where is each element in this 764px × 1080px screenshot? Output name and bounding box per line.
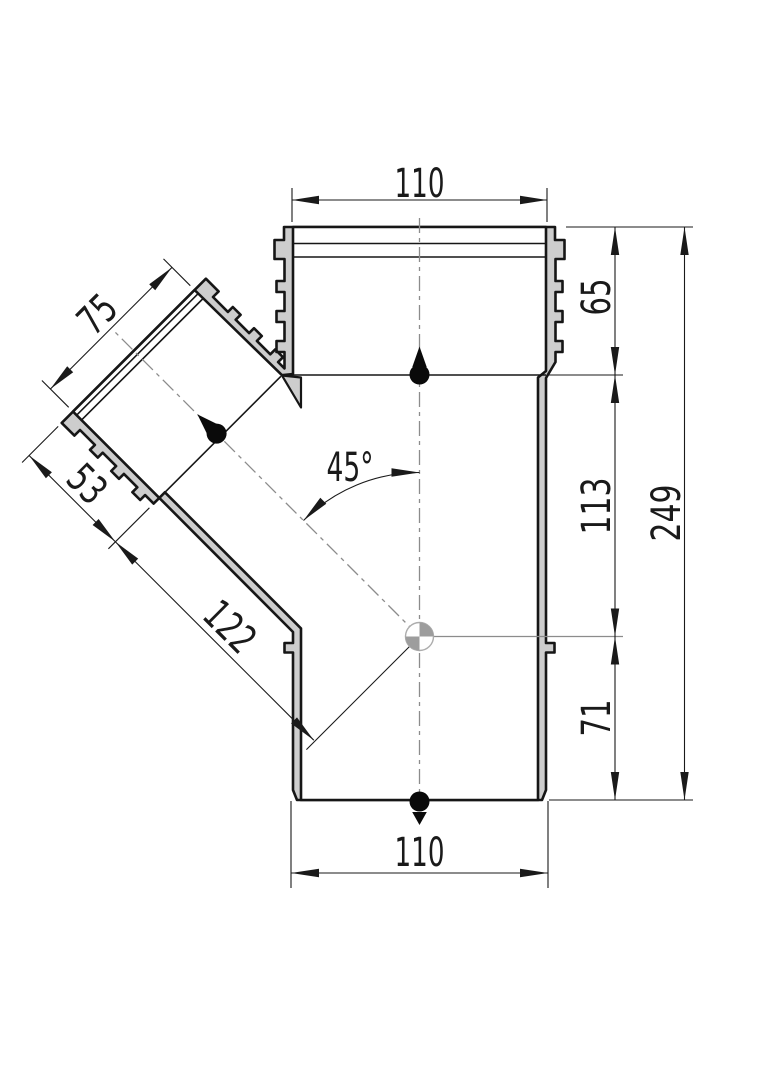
dim-label-bottom-width: 110 [395,830,445,876]
dim-label-branch-angle: 45° [327,445,374,491]
dim-label-branch-center-length: 122 [194,592,265,663]
dim-label-branch-diameter: 75 [68,285,127,344]
dim-label-bottom-to-center: 71 [574,700,620,737]
pipe-fitting-drawing: 110 65 113 71 249 110 75 53 122 45° [0,0,764,1080]
dim-label-center-to-socket: 113 [574,478,620,535]
technical-drawing-canvas: 110 65 113 71 249 110 75 53 122 45° [0,0,764,1080]
dim-label-overall-height: 249 [644,485,690,542]
flow-arrow-bottom-icon [410,792,430,826]
dim-label-branch-socket-depth: 53 [57,455,116,514]
dim-label-top-width: 110 [395,161,445,207]
dim-label-socket-depth-right: 65 [574,279,620,316]
fitting-body [62,227,565,800]
center-marker-icon [406,623,434,651]
